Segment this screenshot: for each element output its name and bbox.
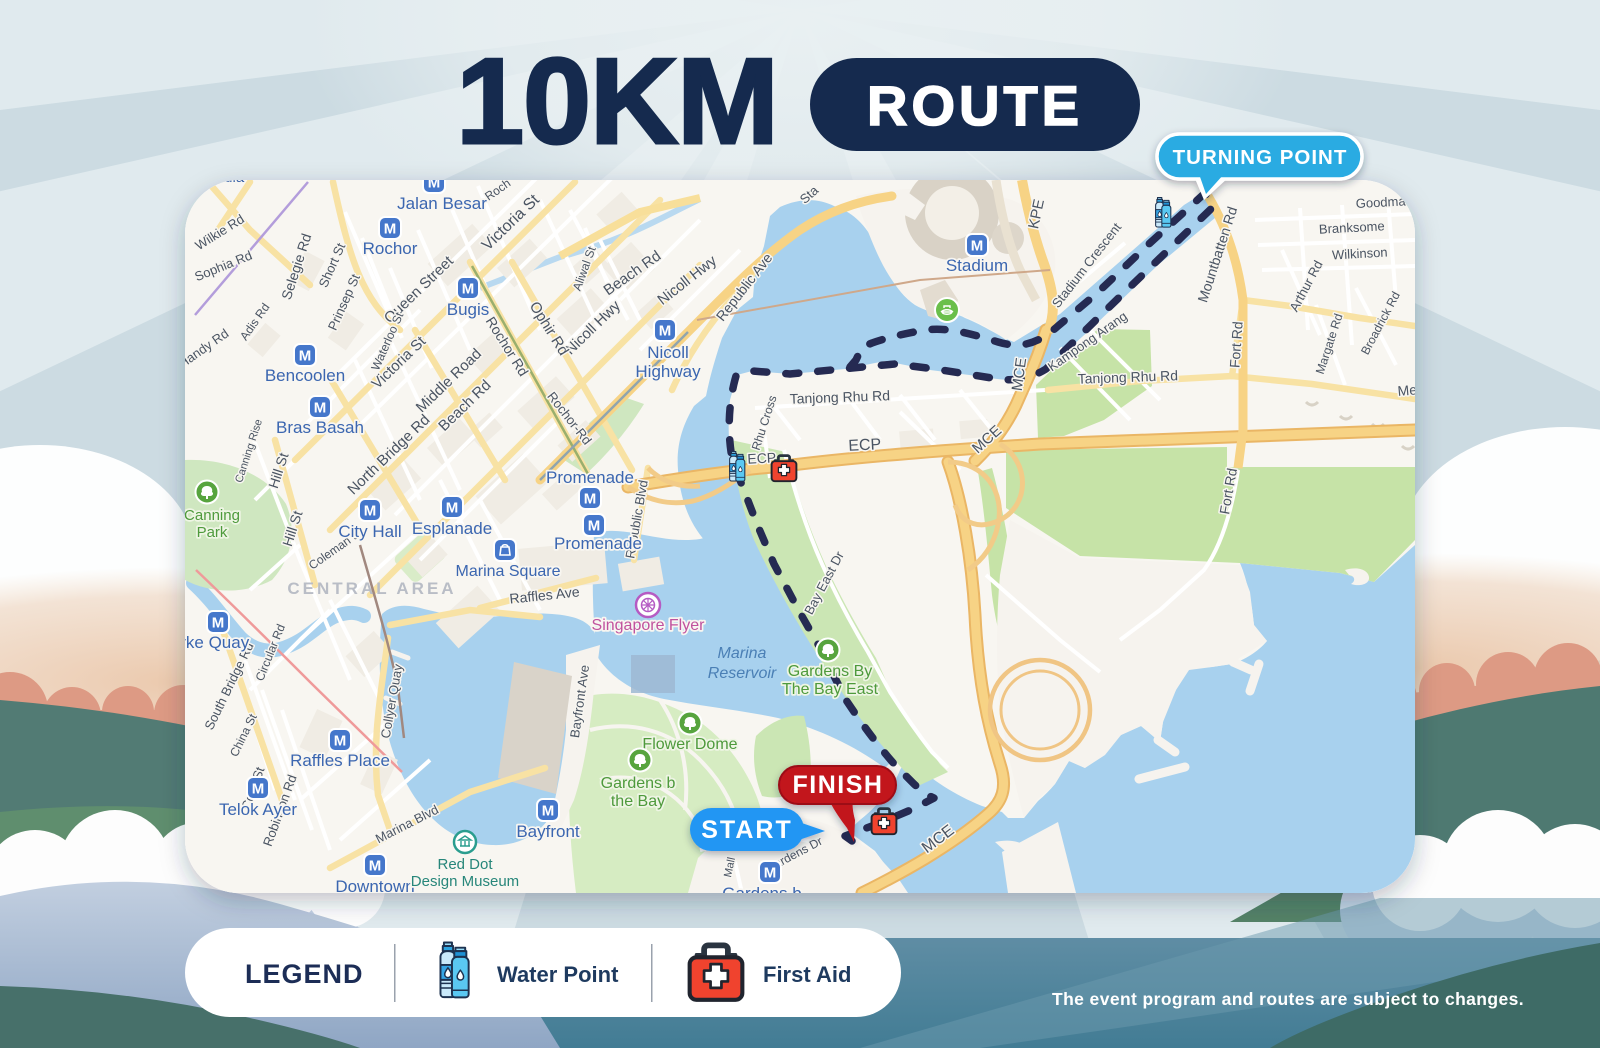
svg-text:Promenade: Promenade [554,534,642,553]
svg-text:START: START [701,816,792,844]
svg-text:City Hall: City Hall [338,522,401,541]
svg-text:M: M [334,733,347,750]
svg-text:the Bay: the Bay [611,793,665,810]
svg-text:M: M [446,500,459,517]
svg-text:First Aid: First Aid [763,962,851,987]
svg-text:Marina: Marina [718,645,767,662]
svg-text:FINISH: FINISH [793,771,884,799]
svg-text:Nicoll: Nicoll [647,343,689,362]
svg-text:The Bay East: The Bay East [782,681,879,698]
svg-text:Marina Square: Marina Square [456,563,561,580]
svg-text:M: M [659,323,672,340]
svg-text:TURNING POINT: TURNING POINT [1173,146,1348,169]
svg-text:Red Dot: Red Dot [437,856,493,873]
svg-text:M: M [971,238,984,255]
svg-text:M: M [212,615,225,632]
svg-text:M: M [542,803,555,820]
svg-text:Stadium: Stadium [946,256,1008,275]
svg-text:ROUTE: ROUTE [867,74,1083,137]
svg-text:The event program and routes a: The event program and routes are subject… [1052,989,1524,1009]
svg-text:LEGEND: LEGEND [245,959,364,989]
svg-text:10KM: 10KM [456,33,777,169]
svg-text:Singapore Flyer: Singapore Flyer [592,617,706,634]
svg-text:ECP: ECP [848,436,882,455]
svg-text:Design Museum: Design Museum [411,873,519,890]
svg-text:Raffles Place: Raffles Place [290,751,390,770]
svg-text:Gardens By: Gardens By [788,663,872,680]
svg-text:Wilkinson: Wilkinson [1332,245,1388,263]
svg-text:M: M [299,348,312,365]
svg-text:M: M [252,781,265,798]
svg-text:Goodma: Goodma [1355,193,1406,211]
svg-text:Canning: Canning [184,507,240,524]
svg-text:M: M [588,518,601,535]
svg-text:Bugis: Bugis [447,300,490,319]
svg-text:M: M [764,865,777,882]
svg-text:Esplanade: Esplanade [412,519,492,538]
svg-text:Jalan Besar: Jalan Besar [397,194,487,213]
svg-text:Reservoir: Reservoir [708,665,777,682]
svg-text:M: M [314,400,327,417]
svg-text:Bayfront: Bayfront [516,822,580,841]
svg-text:Rochor: Rochor [363,239,418,258]
svg-text:Fort Rd: Fort Rd [1226,321,1245,369]
svg-text:M: M [462,281,475,298]
svg-text:Bencoolen: Bencoolen [265,366,345,385]
svg-text:Bras Basah: Bras Basah [276,418,364,437]
svg-text:Flower Dome: Flower Dome [642,736,737,753]
svg-text:M: M [384,221,397,238]
svg-text:Highway: Highway [635,362,701,381]
svg-text:Promenade: Promenade [546,468,634,487]
svg-text:Water Point: Water Point [497,962,619,987]
svg-text:M: M [364,503,377,520]
svg-text:CENTRAL AREA: CENTRAL AREA [287,579,456,598]
svg-text:Park: Park [197,524,228,541]
svg-text:Telok Ayer: Telok Ayer [219,800,297,819]
svg-text:M: M [584,491,597,508]
svg-text:M: M [369,858,382,875]
svg-text:Gardens b: Gardens b [601,775,676,792]
